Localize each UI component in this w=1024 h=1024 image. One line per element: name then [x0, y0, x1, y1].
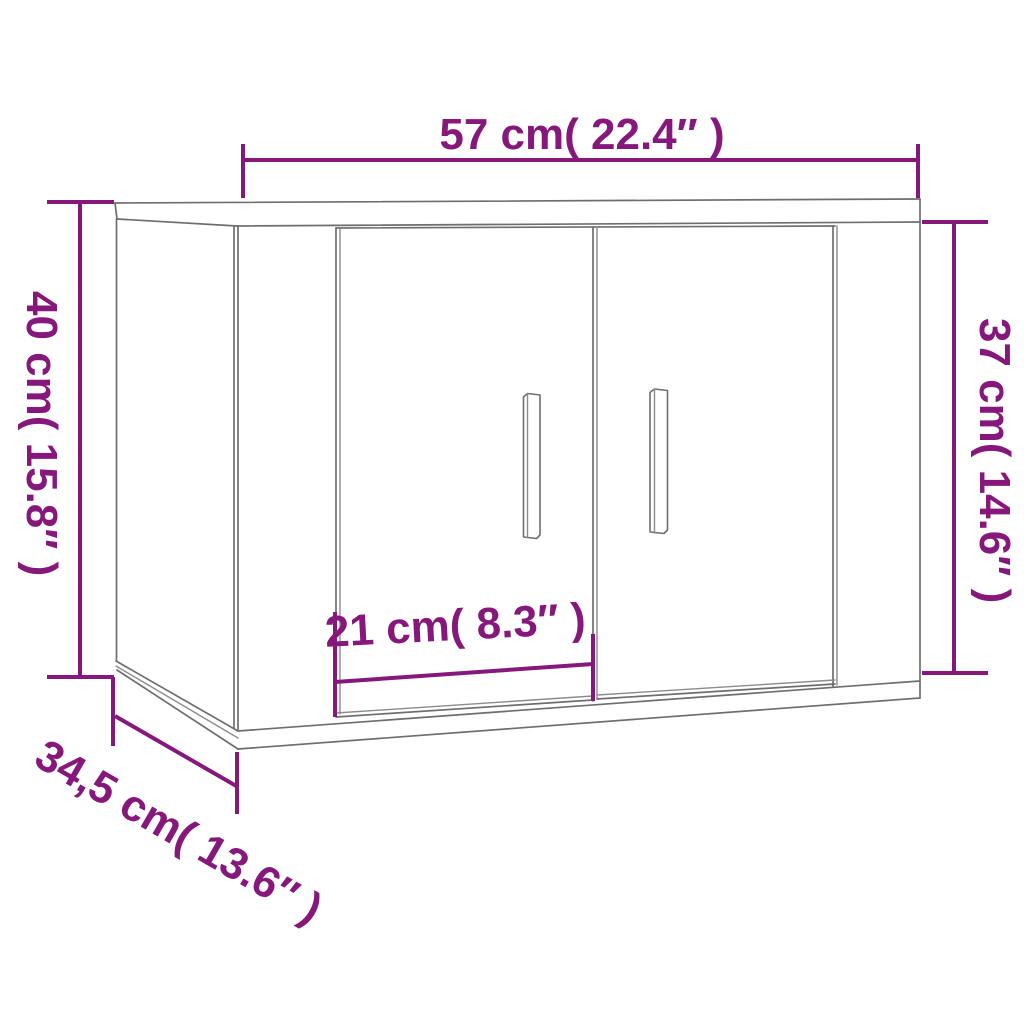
left-door-handle	[524, 394, 541, 539]
depth-dimension-label: 34,5 cm( 13.6″ )	[27, 730, 330, 933]
right-height-dimension: 37 cm( 14.6″ )	[922, 222, 1019, 673]
cabinet-top-panel	[115, 199, 920, 226]
left-height-dimension: 40 cm( 15.8″ )	[17, 202, 114, 677]
dimension-diagram-canvas: 57 cm( 22.4″ ) 40 cm( 15.8″ ) 37 cm( 14.…	[0, 0, 1024, 1024]
right-door	[597, 226, 837, 699]
left-height-dimension-label: 40 cm( 15.8″ )	[17, 291, 66, 576]
right-door-handle	[650, 389, 668, 534]
width-dimension-label: 57 cm( 22.4″ )	[439, 110, 724, 159]
right-height-dimension-label: 37 cm( 14.6″ )	[970, 318, 1019, 603]
doors-top-edge	[336, 226, 835, 228]
product-dimension-diagram: 57 cm( 22.4″ ) 40 cm( 15.8″ ) 37 cm( 14.…	[0, 0, 1024, 1024]
cabinet-left-side-panel	[116, 219, 238, 749]
door-width-dimension-label: 21 cm( 8.3″ )	[324, 594, 587, 657]
cabinet-outline	[115, 199, 920, 749]
depth-dimension: 34,5 cm( 13.6″ )	[27, 677, 330, 934]
width-dimension: 57 cm( 22.4″ )	[243, 110, 918, 198]
